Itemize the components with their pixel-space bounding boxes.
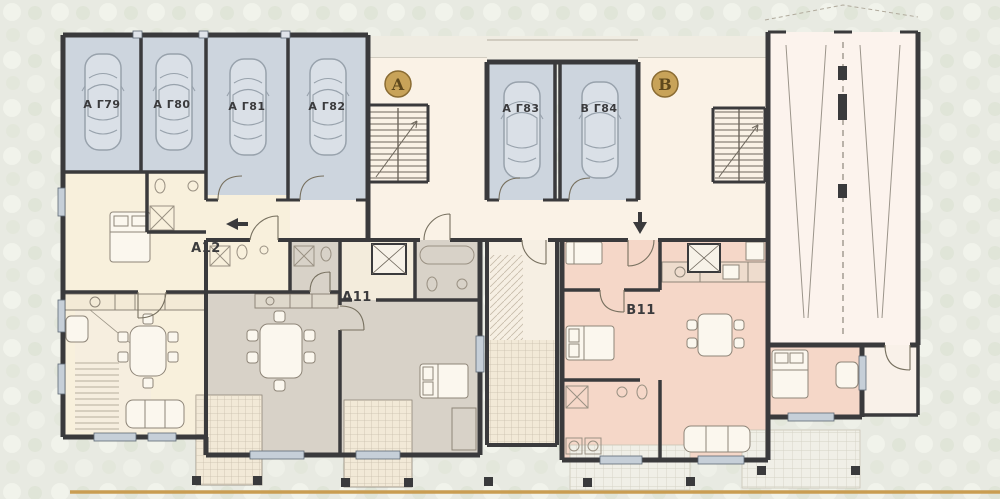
entrance-badge-b: B bbox=[652, 71, 678, 97]
sofa-icon-b11 bbox=[684, 426, 750, 452]
sofa-icon-a12 bbox=[126, 400, 184, 428]
terrace-a11 bbox=[344, 400, 412, 487]
garage-g82-label: A Г82 bbox=[308, 100, 345, 113]
garage-g81-label: A Г81 bbox=[228, 100, 265, 113]
hallway bbox=[206, 200, 768, 240]
armchair-icon-a12 bbox=[66, 316, 88, 342]
apartment-a12-label: A12 bbox=[191, 241, 221, 256]
balcony-left-slats bbox=[75, 362, 119, 430]
bed-icon-b11-top bbox=[566, 242, 602, 264]
floor-plan-canvas: A B A Г79 A Г80 A Г81 A Г82 A Г83 B Г84 … bbox=[0, 0, 1000, 499]
apartment-b11-label: B11 bbox=[626, 303, 656, 318]
terrace-middle bbox=[487, 340, 557, 445]
floor-plan-drawing: A B A Г79 A Г80 A Г81 A Г82 A Г83 B Г84 … bbox=[0, 0, 1000, 499]
elevator-b-icon bbox=[688, 244, 720, 272]
entrance-b-label: B bbox=[658, 75, 672, 94]
kitchen-counter-a12 bbox=[65, 294, 205, 310]
kitchen-counter-a11 bbox=[255, 294, 338, 308]
garage-g83-label: A Г83 bbox=[502, 102, 539, 115]
bed-icon-a11 bbox=[420, 364, 468, 398]
bed-icon-b11-right bbox=[772, 350, 808, 398]
apartment-a11-label: A11 bbox=[342, 290, 372, 305]
armchair-icon-b11 bbox=[836, 362, 858, 388]
entrance-badge-a: A bbox=[385, 71, 411, 97]
garage-g80-label: A Г80 bbox=[153, 98, 190, 111]
bed-icon-b11-mid bbox=[566, 326, 614, 360]
entrance-a-label: A bbox=[391, 75, 405, 94]
elevator-a-icon bbox=[372, 244, 406, 274]
bed-icon-a12 bbox=[110, 212, 150, 262]
apartment-a11-bath2 bbox=[415, 240, 480, 300]
garage-g79-label: A Г79 bbox=[83, 98, 120, 111]
garage-g84-label: B Г84 bbox=[580, 102, 617, 115]
